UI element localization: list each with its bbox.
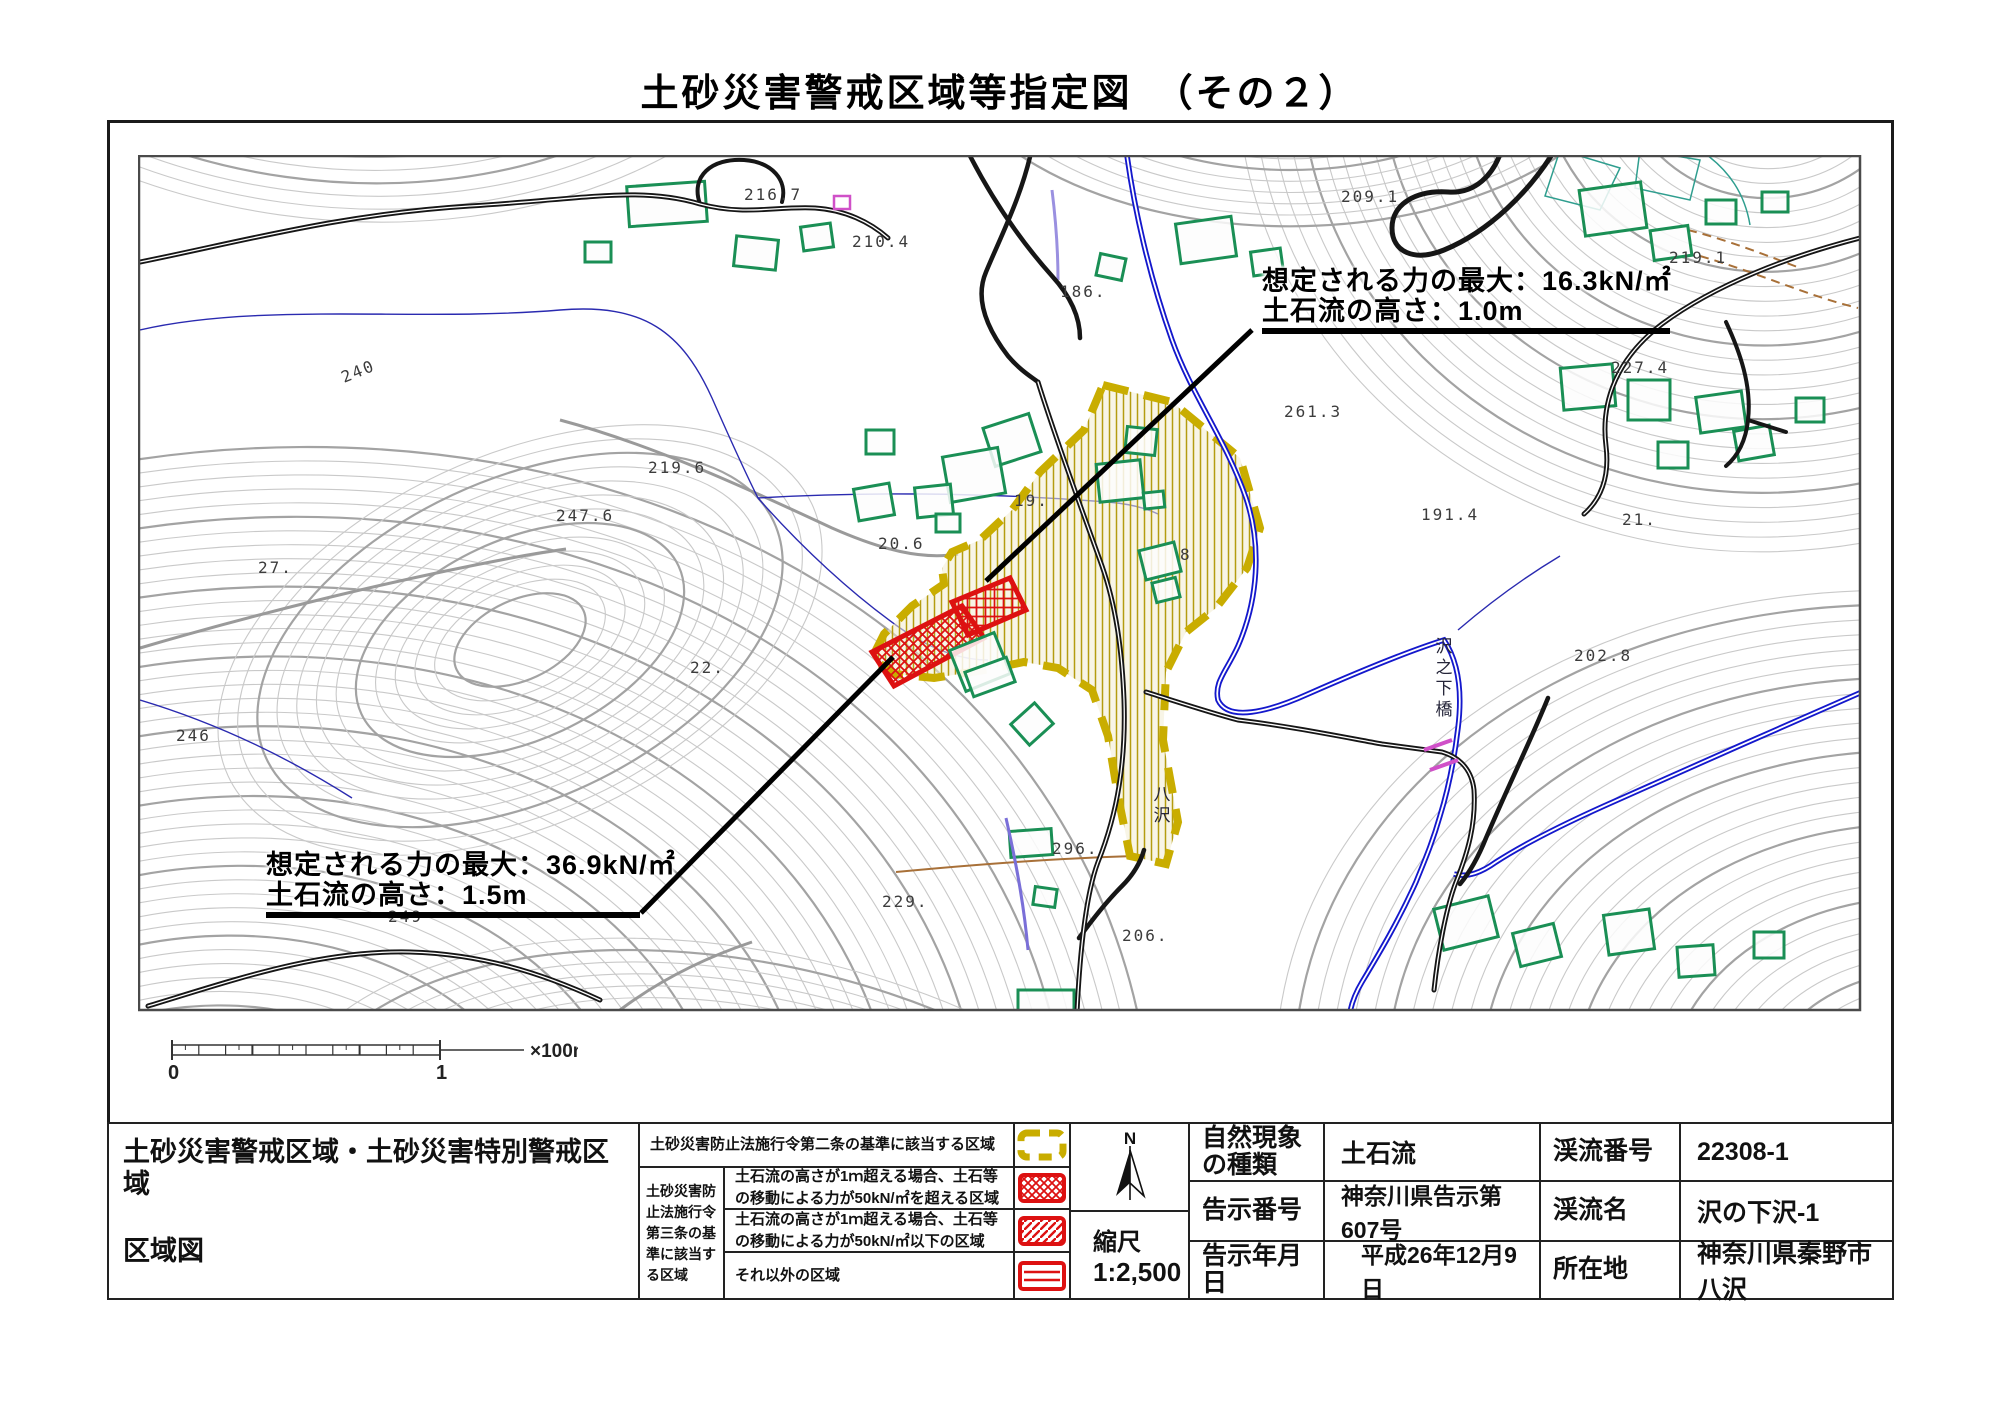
building-outline [1579, 182, 1647, 236]
stream-name-label: 渓流名 [1553, 1197, 1679, 1225]
annotation-upper-line1: 想定される力の最大：16.3kN/㎡ [1262, 266, 1670, 296]
elevation-label: 209.1 [1341, 187, 1399, 206]
building-outline [1125, 427, 1158, 456]
nature-type-label-l2: の種類 [1202, 1152, 1323, 1180]
building-outline [1603, 909, 1654, 955]
legend-row1-symbol-cell [1013, 1122, 1071, 1168]
building-outline [1796, 398, 1824, 422]
building-outline [1175, 216, 1236, 263]
legend-row4-text: それ以外の区域 [735, 1265, 840, 1287]
elevation-label: 219.1 [1669, 248, 1727, 267]
notice-number-value: 神奈川県告示第607号 [1323, 1180, 1541, 1242]
stream-number-label: 渓流番号 [1553, 1138, 1679, 1166]
legend-row4-symbol-cell [1013, 1251, 1071, 1300]
scale-note-label: 縮尺 [1093, 1222, 1188, 1257]
title-block-table: 土砂災害警戒区域・土砂災害特別警戒区域 区域図 土砂災害防止法施行令第二条の基準… [107, 1122, 1894, 1300]
stream-name-label-cell: 渓流名 [1539, 1180, 1681, 1242]
nature-type-label-l1: 自然現象 [1202, 1125, 1323, 1153]
building-outline [1096, 460, 1144, 502]
elevation-label: 296. [1052, 839, 1099, 858]
warning-zone-symbol [1016, 1128, 1068, 1162]
building-outline [800, 223, 833, 251]
location-label-cell: 所在地 [1539, 1240, 1681, 1300]
scale-unit-label: ×100m [530, 1041, 578, 1062]
elevation-label: 229. [882, 892, 929, 911]
map-title-cell: 土砂災害警戒区域・土砂災害特別警戒区域 区域図 [107, 1122, 640, 1300]
building-outline [734, 236, 779, 270]
map-title-line1: 土砂災害警戒区域・土砂災害特別警戒区域 [123, 1136, 624, 1201]
building-outline [1677, 945, 1715, 977]
elevation-label: 8 [1180, 545, 1192, 564]
scale-note-value: 1:2,500 [1093, 1257, 1188, 1288]
elevation-label: 27. [258, 558, 293, 577]
elevation-label: 216.7 [744, 185, 802, 204]
notice-date-label-cell: 告示年月日 [1188, 1240, 1325, 1300]
nature-type-text: 土石流 [1341, 1134, 1416, 1170]
legend-row3-symbol-cell [1013, 1208, 1071, 1253]
scale-zero-label: 0 [168, 1062, 179, 1084]
legend-group-text: 土砂災害防止法施行令第三条の基準に該当する区域 [646, 1181, 717, 1286]
building-outline [866, 430, 894, 454]
building-outline [1696, 391, 1747, 433]
building-outline [1096, 254, 1126, 281]
legend-row4-desc: それ以外の区域 [723, 1251, 1015, 1300]
legend-row3-desc: 土石流の高さが1ｍ超える場合、土石等の移動による力が50kN/㎡以下の区域 [723, 1208, 1015, 1253]
notice-number-label: 告示番号 [1202, 1197, 1323, 1225]
page-title: 土砂災害警戒区域等指定図 （その２） [0, 62, 2000, 117]
elevation-label: 21. [1622, 510, 1657, 529]
location-label: 所在地 [1553, 1256, 1679, 1284]
legend-row3-text: 土石流の高さが1ｍ超える場合、土石等の移動による力が50kN/㎡以下の区域 [735, 1209, 1003, 1253]
elevation-label: 247.6 [556, 506, 614, 525]
stream-number-value: 22308-1 [1679, 1122, 1894, 1182]
notice-number-text: 神奈川県告示第607号 [1341, 1177, 1539, 1245]
annotation-upper-line2: 土石流の高さ：1.0m [1262, 296, 1670, 326]
stream-name-value: 沢の下沢-1 [1679, 1180, 1894, 1242]
building-outline [1628, 380, 1670, 420]
legend-row2-symbol-cell [1013, 1166, 1071, 1210]
building-outline [1143, 491, 1165, 509]
scale-note-cell: 縮尺 1:2,500 [1069, 1210, 1190, 1300]
building-outline [1762, 192, 1788, 212]
building-outline [1706, 200, 1736, 224]
legend-row1-desc: 土砂災害防止法施行令第二条の基準に該当する区域 [638, 1122, 1015, 1168]
building-outline [1152, 577, 1180, 602]
building-outline [1009, 829, 1053, 858]
map-title-line2: 区域図 [123, 1235, 624, 1267]
annotation-upper: 想定される力の最大：16.3kN/㎡ 土石流の高さ：1.0m [1262, 266, 1670, 334]
building-outline [1033, 887, 1057, 908]
scale-bar: 0 1 ×100m [138, 1032, 578, 1087]
elevation-label: 22. [690, 658, 725, 677]
notice-date-text: 平成26年12月9日 [1361, 1236, 1539, 1304]
location-text: 神奈川県秦野市八沢 [1697, 1234, 1892, 1306]
building-outline [1139, 542, 1181, 580]
scale-one-label: 1 [436, 1062, 447, 1084]
elevation-label: 19. [1014, 491, 1049, 510]
nature-type-label-cell: 自然現象 の種類 [1188, 1122, 1325, 1182]
building-outline [1018, 990, 1074, 1012]
annotation-lower-line2: 土石流の高さ：1.5m [266, 880, 640, 910]
legend-row1-text: 土砂災害防止法施行令第二条の基準に該当する区域 [650, 1134, 995, 1156]
elevation-label: 227.4 [1611, 358, 1669, 377]
notice-date-value: 平成26年12月9日 [1323, 1240, 1541, 1300]
building-outline [1754, 932, 1784, 958]
legend-row2-desc: 土石流の高さが1ｍ超える場合、土石等の移動による力が50kN/㎡を超える区域 [723, 1166, 1015, 1210]
document-page: 土砂災害警戒区域等指定図 （その２） [0, 0, 2000, 1414]
notice-number-label-cell: 告示番号 [1188, 1180, 1325, 1242]
legend-group-cell: 土砂災害防止法施行令第三条の基準に該当する区域 [638, 1166, 725, 1300]
stream-number-text: 22308-1 [1697, 1138, 1789, 1167]
elevation-label: 191.4 [1421, 505, 1479, 524]
elevation-label: 210.4 [852, 232, 910, 251]
compass-cell: N [1069, 1122, 1190, 1212]
elevation-label: 202.8 [1574, 646, 1632, 665]
crosshatch-zone-symbol [1016, 1171, 1068, 1205]
building-outline [1658, 442, 1688, 468]
north-arrow-icon: N [1100, 1128, 1160, 1206]
elevation-label: 246 [176, 726, 211, 745]
location-value: 神奈川県秦野市八沢 [1679, 1240, 1894, 1300]
elevation-label: 219.6 [648, 458, 706, 477]
north-label: N [1123, 1129, 1135, 1148]
stream-number-label-cell: 渓流番号 [1539, 1122, 1681, 1182]
annotation-lower: 想定される力の最大：36.9kN/㎡ 土石流の高さ：1.5m [266, 850, 640, 918]
other-zone-symbol [1016, 1259, 1068, 1293]
nature-type-value: 土石流 [1323, 1122, 1541, 1182]
annotation-lower-line1: 想定される力の最大：36.9kN/㎡ [266, 850, 640, 880]
elevation-label: 20.6 [878, 534, 925, 553]
stream-name-text: 沢の下沢-1 [1697, 1193, 1819, 1229]
legend-row2-text: 土石流の高さが1ｍ超える場合、土石等の移動による力が50kN/㎡を超える区域 [735, 1166, 1003, 1210]
notice-date-label: 告示年月日 [1202, 1243, 1323, 1298]
elevation-label: 261.3 [1284, 402, 1342, 421]
elevation-label: 206. [1122, 926, 1169, 945]
building-outline [585, 242, 611, 262]
diagonal-hatch-zone-symbol [1016, 1214, 1068, 1248]
building-outline [1734, 425, 1775, 461]
building-outline [936, 514, 960, 532]
building-outline [853, 483, 894, 521]
elevation-label: 186. [1060, 282, 1107, 301]
